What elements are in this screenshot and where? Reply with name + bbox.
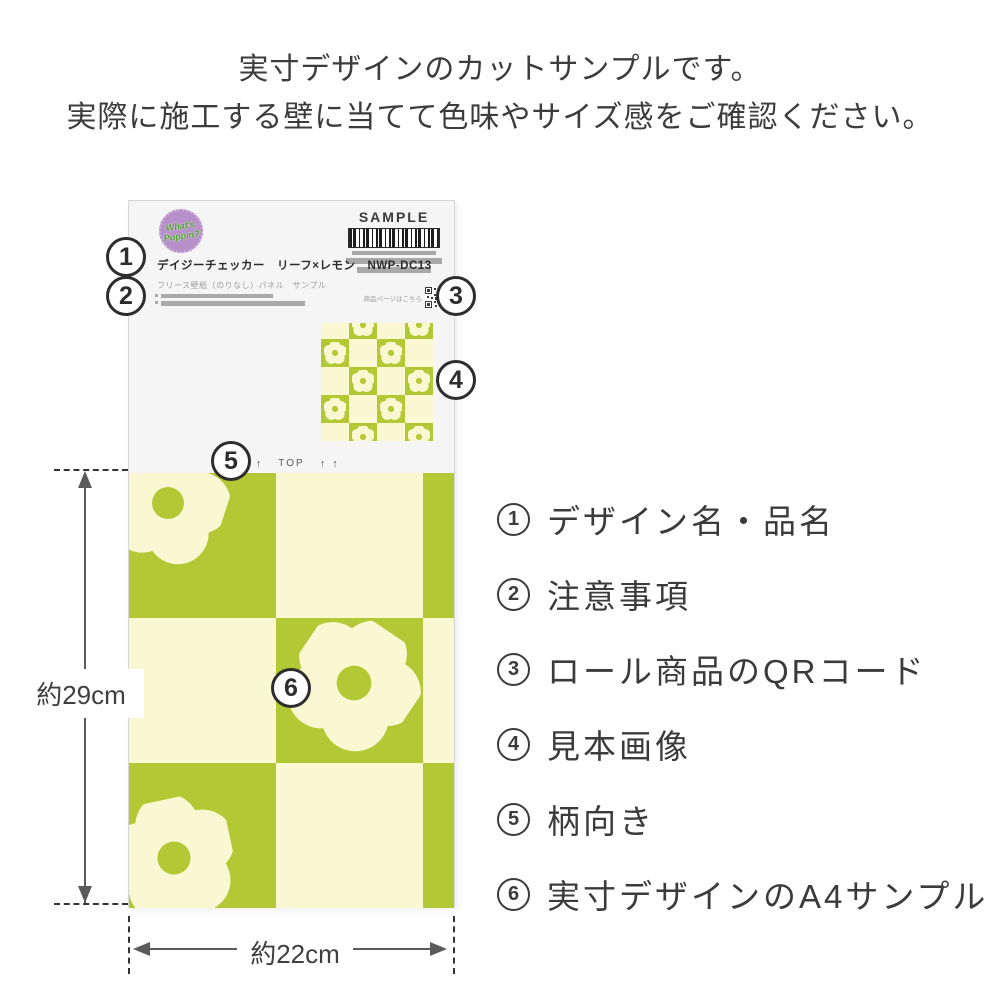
pattern-cell xyxy=(129,618,276,763)
width-dimension-label: 約22cm xyxy=(237,932,353,973)
daisy-flower-icon xyxy=(352,426,374,441)
up-arrows-icon: ↑ ↑ xyxy=(320,458,340,470)
thumbnail-cell xyxy=(405,395,433,423)
card-label-area: What's Poppin? SAMPLE デイジーチェッカー リーフ×レモン … xyxy=(129,201,454,473)
legend-number: 2 xyxy=(497,578,530,611)
callout-5: 5 xyxy=(211,441,251,481)
qr-caption: 商品ページはこちら xyxy=(364,293,422,303)
callout-1: 1 xyxy=(106,237,146,277)
daisy-flower-icon xyxy=(380,342,402,364)
thumbnail-cell xyxy=(321,323,349,339)
arrow-right-icon xyxy=(430,942,447,956)
daisy-flower-icon xyxy=(324,398,346,420)
legend-number: 4 xyxy=(497,728,530,761)
sample-card: What's Poppin? SAMPLE デイジーチェッカー リーフ×レモン … xyxy=(128,200,455,907)
legend-item-sample-image: 4 見本画像 xyxy=(497,727,988,761)
legend-label: 見本画像 xyxy=(547,720,691,768)
thumbnail-cell xyxy=(349,339,377,367)
legend-label: 注意事項 xyxy=(547,570,691,618)
top-label: TOP xyxy=(278,458,304,470)
legend-item-pattern-direction: 5 柄向き xyxy=(497,802,988,836)
legend-item-design-name: 1 デザイン名・品名 xyxy=(497,502,988,536)
callout-6: 6 xyxy=(271,668,311,708)
callout-4: 4 xyxy=(436,360,476,400)
product-subtitle: フリース壁紙（のりなし）パネル サンプル xyxy=(157,280,326,291)
sample-label: SAMPLE xyxy=(342,209,446,225)
thumbnail-cell xyxy=(349,395,377,423)
thumbnail-cell xyxy=(321,367,349,395)
legend-number: 5 xyxy=(497,803,530,836)
barcode-icon xyxy=(348,228,440,248)
arrow-down-icon xyxy=(78,886,92,903)
thumbnail-cell xyxy=(321,423,349,441)
thumbnail-cell xyxy=(349,323,377,339)
callout-2: 2 xyxy=(106,276,146,316)
product-title: デイジーチェッカー リーフ×レモン NWP-DC13 xyxy=(157,257,432,273)
callout-3: 3 xyxy=(436,276,476,316)
legend-number: 3 xyxy=(497,653,530,686)
thumbnail-cell xyxy=(377,395,405,423)
daisy-flower-icon xyxy=(408,370,430,392)
thumbnail-cell xyxy=(405,339,433,367)
legend-item-a4-sample: 6 実寸デザインのA4サンプル xyxy=(497,877,988,911)
legend-number: 1 xyxy=(497,503,530,536)
legend-item-qr-code: 3 ロール商品のQRコード xyxy=(497,652,988,686)
header-line-2: 実際に施工する壁に当てて色味やサイズ感をご確認ください。 xyxy=(0,94,1000,142)
brand-logo: What's Poppin? xyxy=(156,206,206,256)
daisy-flower-icon xyxy=(408,323,430,336)
legend: 1 デザイン名・品名 2 注意事項 3 ロール商品のQRコード 4 見本画像 5… xyxy=(497,502,988,952)
daisy-flower-icon xyxy=(352,370,374,392)
pattern-cell xyxy=(276,473,423,618)
thumbnail-cell xyxy=(405,367,433,395)
header-line-1: 実寸デザインのカットサンプルです。 xyxy=(0,46,1000,94)
pattern-direction-mark: ↑ ↑ TOP ↑ ↑ xyxy=(129,458,454,470)
thumbnail-cell xyxy=(377,367,405,395)
pattern-cell xyxy=(423,473,454,618)
daisy-flower-icon xyxy=(324,342,346,364)
thumbnail-cell xyxy=(405,423,433,441)
legend-label: 実寸デザインのA4サンプル xyxy=(547,870,988,918)
thumbnail-cell xyxy=(377,323,405,339)
qr-block: 商品ページはこちら xyxy=(364,287,446,308)
dimension-tick xyxy=(453,916,455,974)
pattern-cell xyxy=(423,618,454,763)
thumbnail-cell xyxy=(405,323,433,339)
pattern-cell xyxy=(423,763,454,908)
arrow-left-icon xyxy=(133,942,150,956)
thumbnail-cell xyxy=(349,423,377,441)
thumbnail-cell xyxy=(321,339,349,367)
legend-item-notes: 2 注意事項 xyxy=(497,577,988,611)
daisy-flower-icon xyxy=(352,323,374,336)
legend-number: 6 xyxy=(497,878,530,911)
page: 実寸デザインのカットサンプルです。 実際に施工する壁に当てて色味やサイズ感をご確… xyxy=(0,0,1000,1000)
legend-label: デザイン名・品名 xyxy=(547,495,835,543)
note-redacted-line xyxy=(161,301,305,306)
daisy-flower-icon xyxy=(380,398,402,420)
arrow-up-icon xyxy=(78,471,92,488)
thumbnail-cell xyxy=(321,395,349,423)
thumbnail-cell xyxy=(377,423,405,441)
legend-label: 柄向き xyxy=(547,795,655,843)
height-dimension-label: 約29cm xyxy=(18,669,144,718)
dimension-tick xyxy=(128,916,130,974)
pattern-cell xyxy=(276,763,423,908)
redacted-line xyxy=(352,251,436,255)
legend-label: ロール商品のQRコード xyxy=(547,645,927,693)
thumbnail-cell xyxy=(349,367,377,395)
dimension-tick xyxy=(54,903,128,905)
thumbnail-cell xyxy=(377,339,405,367)
pattern-thumbnail xyxy=(321,323,433,441)
note-redacted-line xyxy=(161,294,273,298)
header: 実寸デザインのカットサンプルです。 実際に施工する壁に当てて色味やサイズ感をご確… xyxy=(0,46,1000,142)
daisy-flower-icon xyxy=(408,426,430,441)
